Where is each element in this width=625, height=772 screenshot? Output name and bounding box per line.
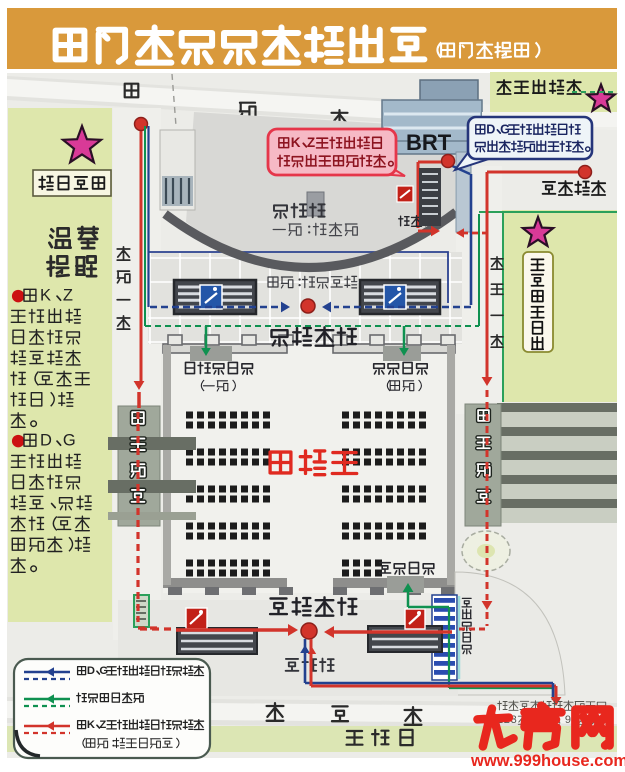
svg-text:D: D [40,432,52,450]
svg-text:G: G [63,432,76,450]
svg-text:D: D [87,665,95,677]
svg-text:Z: Z [307,135,315,150]
svg-text:K: K [40,287,51,305]
svg-text:D: D [486,122,495,136]
svg-text:9: 9 [565,714,571,726]
svg-text:www.999house.com: www.999house.com [470,752,625,770]
svg-text:K: K [291,135,301,150]
svg-text:Z: Z [99,719,106,731]
svg-text:Z: Z [63,287,73,305]
svg-text:K: K [87,719,95,731]
svg-text:BRT: BRT [406,130,452,155]
